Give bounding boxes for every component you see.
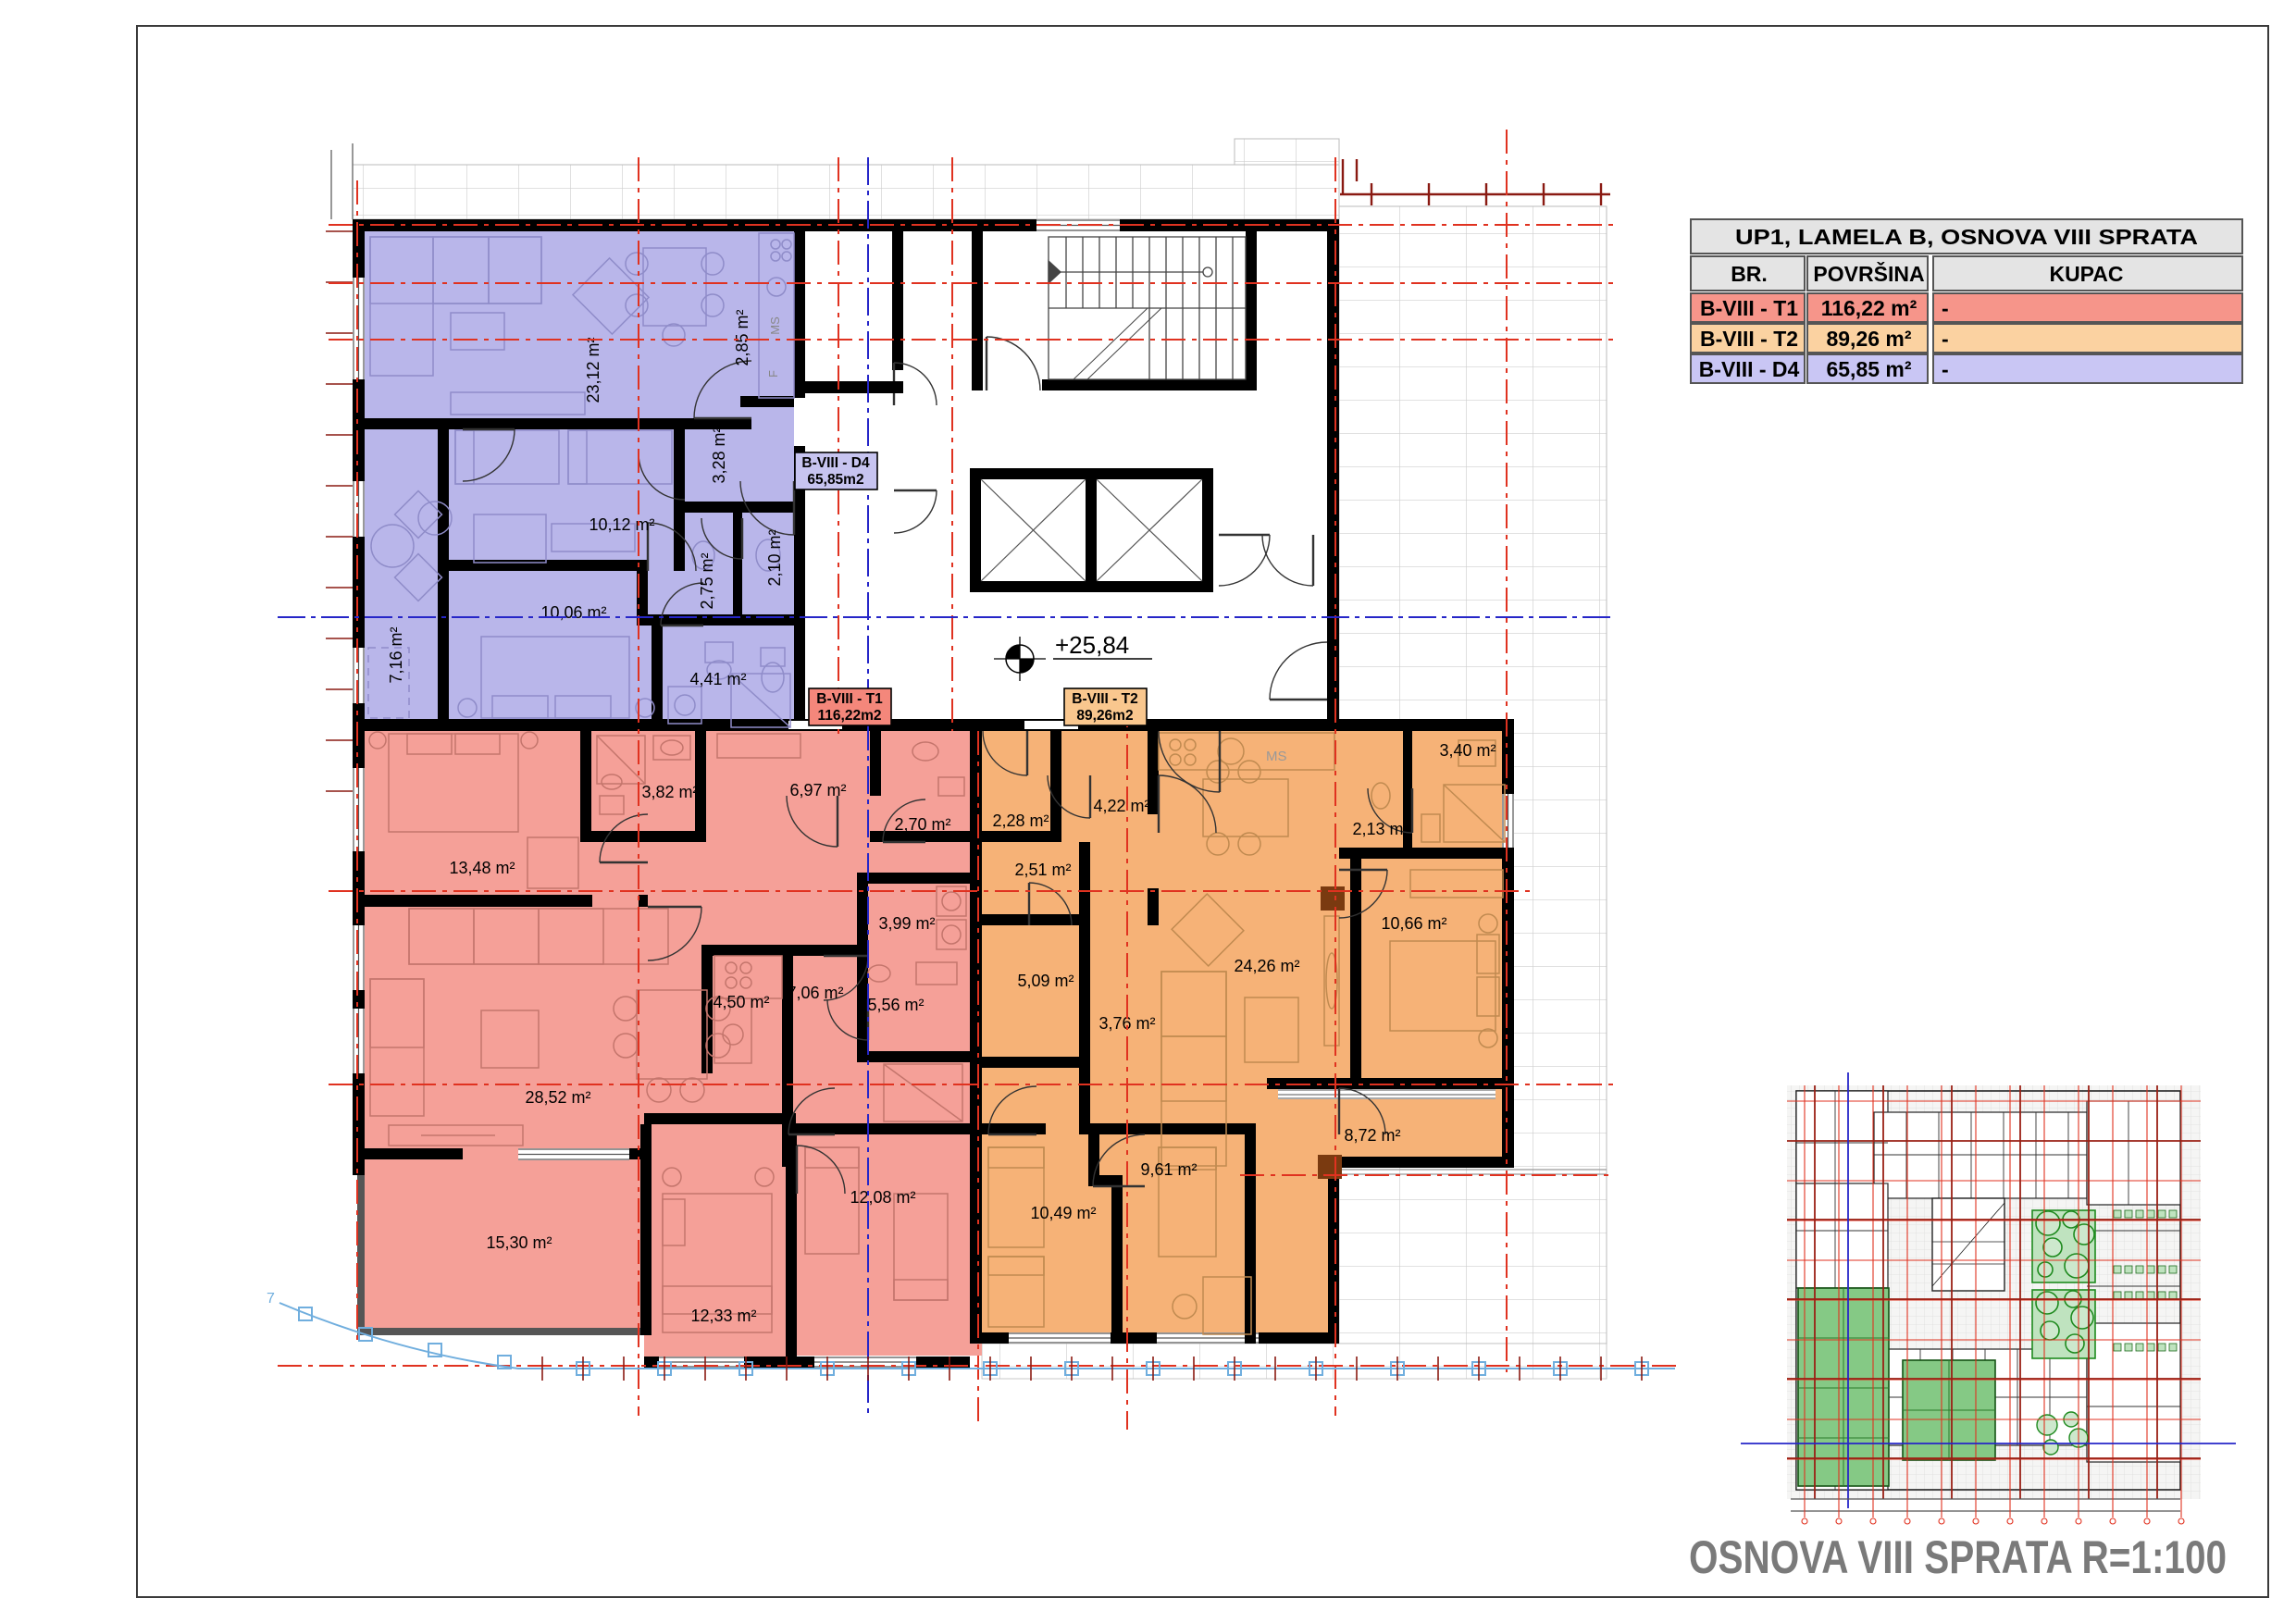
- svg-text:4,22 m²: 4,22 m²: [1093, 797, 1149, 815]
- svg-text:5,56 m²: 5,56 m²: [867, 996, 924, 1014]
- svg-text:10,49 m²: 10,49 m²: [1030, 1204, 1096, 1222]
- svg-text:3,40 m²: 3,40 m²: [1439, 741, 1496, 760]
- svg-text:B-VIII - D4: B-VIII - D4: [1699, 357, 1800, 381]
- svg-text:3,99 m²: 3,99 m²: [878, 914, 935, 933]
- svg-text:23,12 m²: 23,12 m²: [584, 337, 602, 403]
- svg-text:B-VIII - T2: B-VIII - T2: [1072, 691, 1137, 707]
- svg-text:8,72 m²: 8,72 m²: [1344, 1126, 1400, 1145]
- svg-text:65,85m2: 65,85m2: [807, 472, 863, 488]
- svg-text:B-VIII - T1: B-VIII - T1: [816, 691, 883, 707]
- svg-text:4,50 m²: 4,50 m²: [713, 993, 769, 1011]
- svg-text:B-VIII - T2: B-VIII - T2: [1700, 327, 1798, 351]
- svg-text:OSNOVA VIII SPRATA R=1:100: OSNOVA VIII SPRATA R=1:100: [1689, 1531, 2227, 1583]
- svg-text:+25,84: +25,84: [1055, 631, 1129, 659]
- svg-text:6,97 m²: 6,97 m²: [789, 781, 846, 799]
- svg-text:10,66 m²: 10,66 m²: [1381, 914, 1446, 933]
- svg-text:-: -: [1942, 327, 1949, 351]
- svg-text:POVRŠINA: POVRŠINA: [1813, 261, 1924, 286]
- svg-text:UP1, LAMELA B, OSNOVA VIII SPR: UP1, LAMELA B, OSNOVA VIII SPRATA: [1735, 225, 2198, 249]
- svg-text:2,85 m²: 2,85 m²: [733, 309, 751, 365]
- svg-text:12,08 m²: 12,08 m²: [850, 1188, 915, 1207]
- svg-text:28,52 m²: 28,52 m²: [525, 1088, 590, 1107]
- svg-text:BR.: BR.: [1731, 262, 1768, 286]
- svg-text:89,26 m²: 89,26 m²: [1826, 327, 1911, 351]
- svg-text:MS: MS: [1266, 749, 1287, 764]
- svg-text:3,28 m²: 3,28 m²: [710, 427, 728, 483]
- svg-text:2,10 m²: 2,10 m²: [765, 529, 784, 586]
- svg-text:7,06 m²: 7,06 m²: [787, 984, 843, 1002]
- svg-text:9,61 m²: 9,61 m²: [1140, 1160, 1197, 1179]
- svg-text:MS: MS: [768, 316, 782, 335]
- svg-text:4,41 m²: 4,41 m²: [689, 670, 746, 688]
- svg-text:2,75 m²: 2,75 m²: [698, 552, 716, 609]
- svg-text:-: -: [1942, 296, 1949, 320]
- svg-text:7: 7: [267, 1291, 275, 1307]
- svg-text:B-VIII - T1: B-VIII - T1: [1700, 296, 1798, 320]
- svg-text:2,13 m²: 2,13 m²: [1352, 820, 1409, 838]
- svg-text:15,30 m²: 15,30 m²: [486, 1233, 552, 1252]
- svg-text:10,06 m²: 10,06 m²: [540, 603, 606, 622]
- svg-text:5,09 m²: 5,09 m²: [1017, 972, 1074, 990]
- svg-text:KUPAC: KUPAC: [2049, 262, 2123, 286]
- svg-text:2,51 m²: 2,51 m²: [1014, 861, 1071, 879]
- svg-text:B-VIII - D4: B-VIII - D4: [801, 455, 870, 471]
- svg-text:12,33 m²: 12,33 m²: [690, 1307, 756, 1325]
- svg-text:116,22 m²: 116,22 m²: [1821, 296, 1917, 320]
- svg-text:2,70 m²: 2,70 m²: [894, 815, 950, 834]
- svg-text:65,85 m²: 65,85 m²: [1826, 357, 1911, 381]
- svg-text:3,82 m²: 3,82 m²: [641, 783, 698, 801]
- svg-text:F: F: [766, 370, 780, 378]
- svg-text:13,48 m²: 13,48 m²: [449, 859, 515, 877]
- svg-text:-: -: [1942, 357, 1949, 381]
- svg-text:2,28 m²: 2,28 m²: [992, 811, 1049, 830]
- svg-text:89,26m2: 89,26m2: [1076, 708, 1133, 724]
- svg-text:10,12 m²: 10,12 m²: [589, 515, 654, 534]
- svg-text:7,16 m²: 7,16 m²: [387, 626, 405, 683]
- svg-text:116,22m2: 116,22m2: [818, 708, 882, 724]
- svg-text:24,26 m²: 24,26 m²: [1234, 957, 1299, 975]
